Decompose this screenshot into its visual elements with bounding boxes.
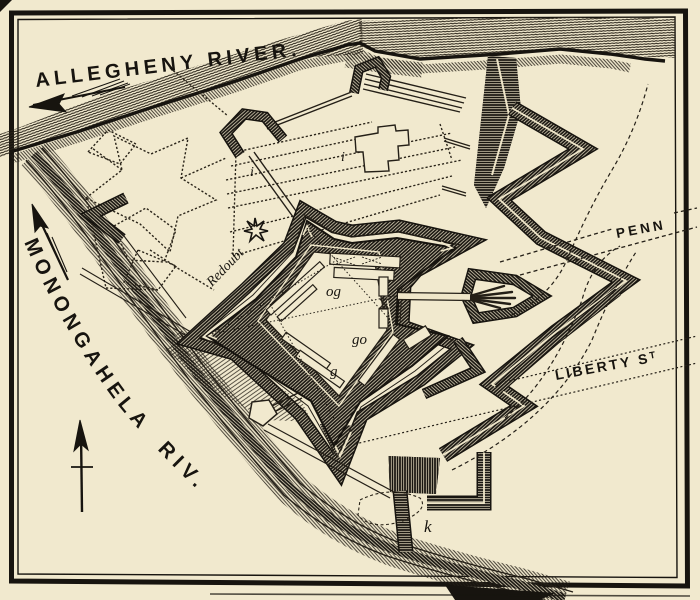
svg-text:og: og [326, 284, 342, 300]
svg-text:i: i [250, 165, 254, 180]
svg-text:k: k [424, 517, 432, 536]
svg-text:go: go [352, 332, 368, 348]
svg-text:g: g [330, 364, 338, 380]
svg-text:i: i [341, 150, 345, 165]
